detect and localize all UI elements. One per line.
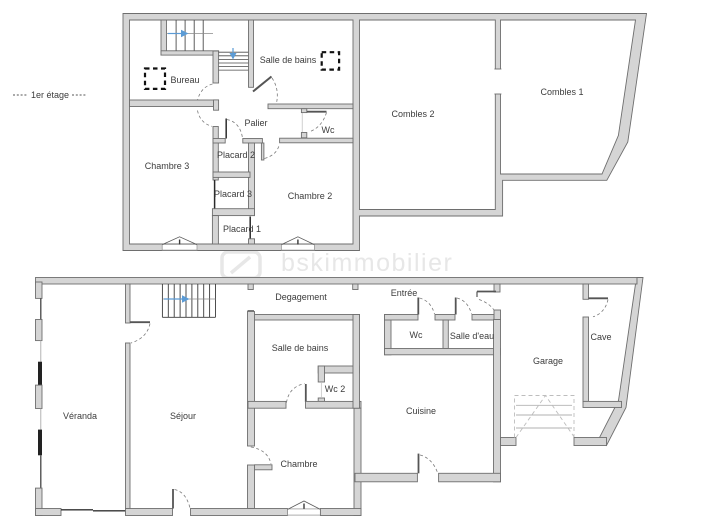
svg-text:Placard 3: Placard 3 — [214, 189, 252, 199]
svg-text:Garage: Garage — [533, 356, 563, 366]
svg-text:Combles 2: Combles 2 — [391, 109, 434, 119]
svg-text:Véranda: Véranda — [63, 411, 97, 421]
svg-text:Wc: Wc — [322, 125, 335, 135]
svg-text:Cave: Cave — [590, 332, 611, 342]
svg-text:Wc 2: Wc 2 — [325, 384, 346, 394]
svg-text:Chambre 2: Chambre 2 — [288, 191, 333, 201]
svg-text:Salle de bains: Salle de bains — [272, 343, 329, 353]
svg-text:Salle d'eau: Salle d'eau — [450, 331, 494, 341]
svg-text:Chambre 3: Chambre 3 — [145, 161, 190, 171]
svg-text:Combles 1: Combles 1 — [540, 87, 583, 97]
svg-text:Placard 2: Placard 2 — [217, 150, 255, 160]
svg-text:Placard 1: Placard 1 — [223, 224, 261, 234]
svg-text:Cuisine: Cuisine — [406, 406, 436, 416]
svg-text:1er étage: 1er étage — [31, 90, 69, 100]
svg-text:Chambre: Chambre — [280, 459, 317, 469]
svg-text:Séjour: Séjour — [170, 411, 196, 421]
svg-text:Bureau: Bureau — [170, 75, 199, 85]
svg-text:Entrée: Entrée — [391, 288, 418, 298]
svg-text:Palier: Palier — [244, 118, 267, 128]
svg-text:Wc: Wc — [410, 330, 423, 340]
svg-text:Salle de bains: Salle de bains — [260, 55, 317, 65]
svg-text:bskimmobilier: bskimmobilier — [281, 249, 453, 277]
svg-text:Degagement: Degagement — [275, 292, 327, 302]
